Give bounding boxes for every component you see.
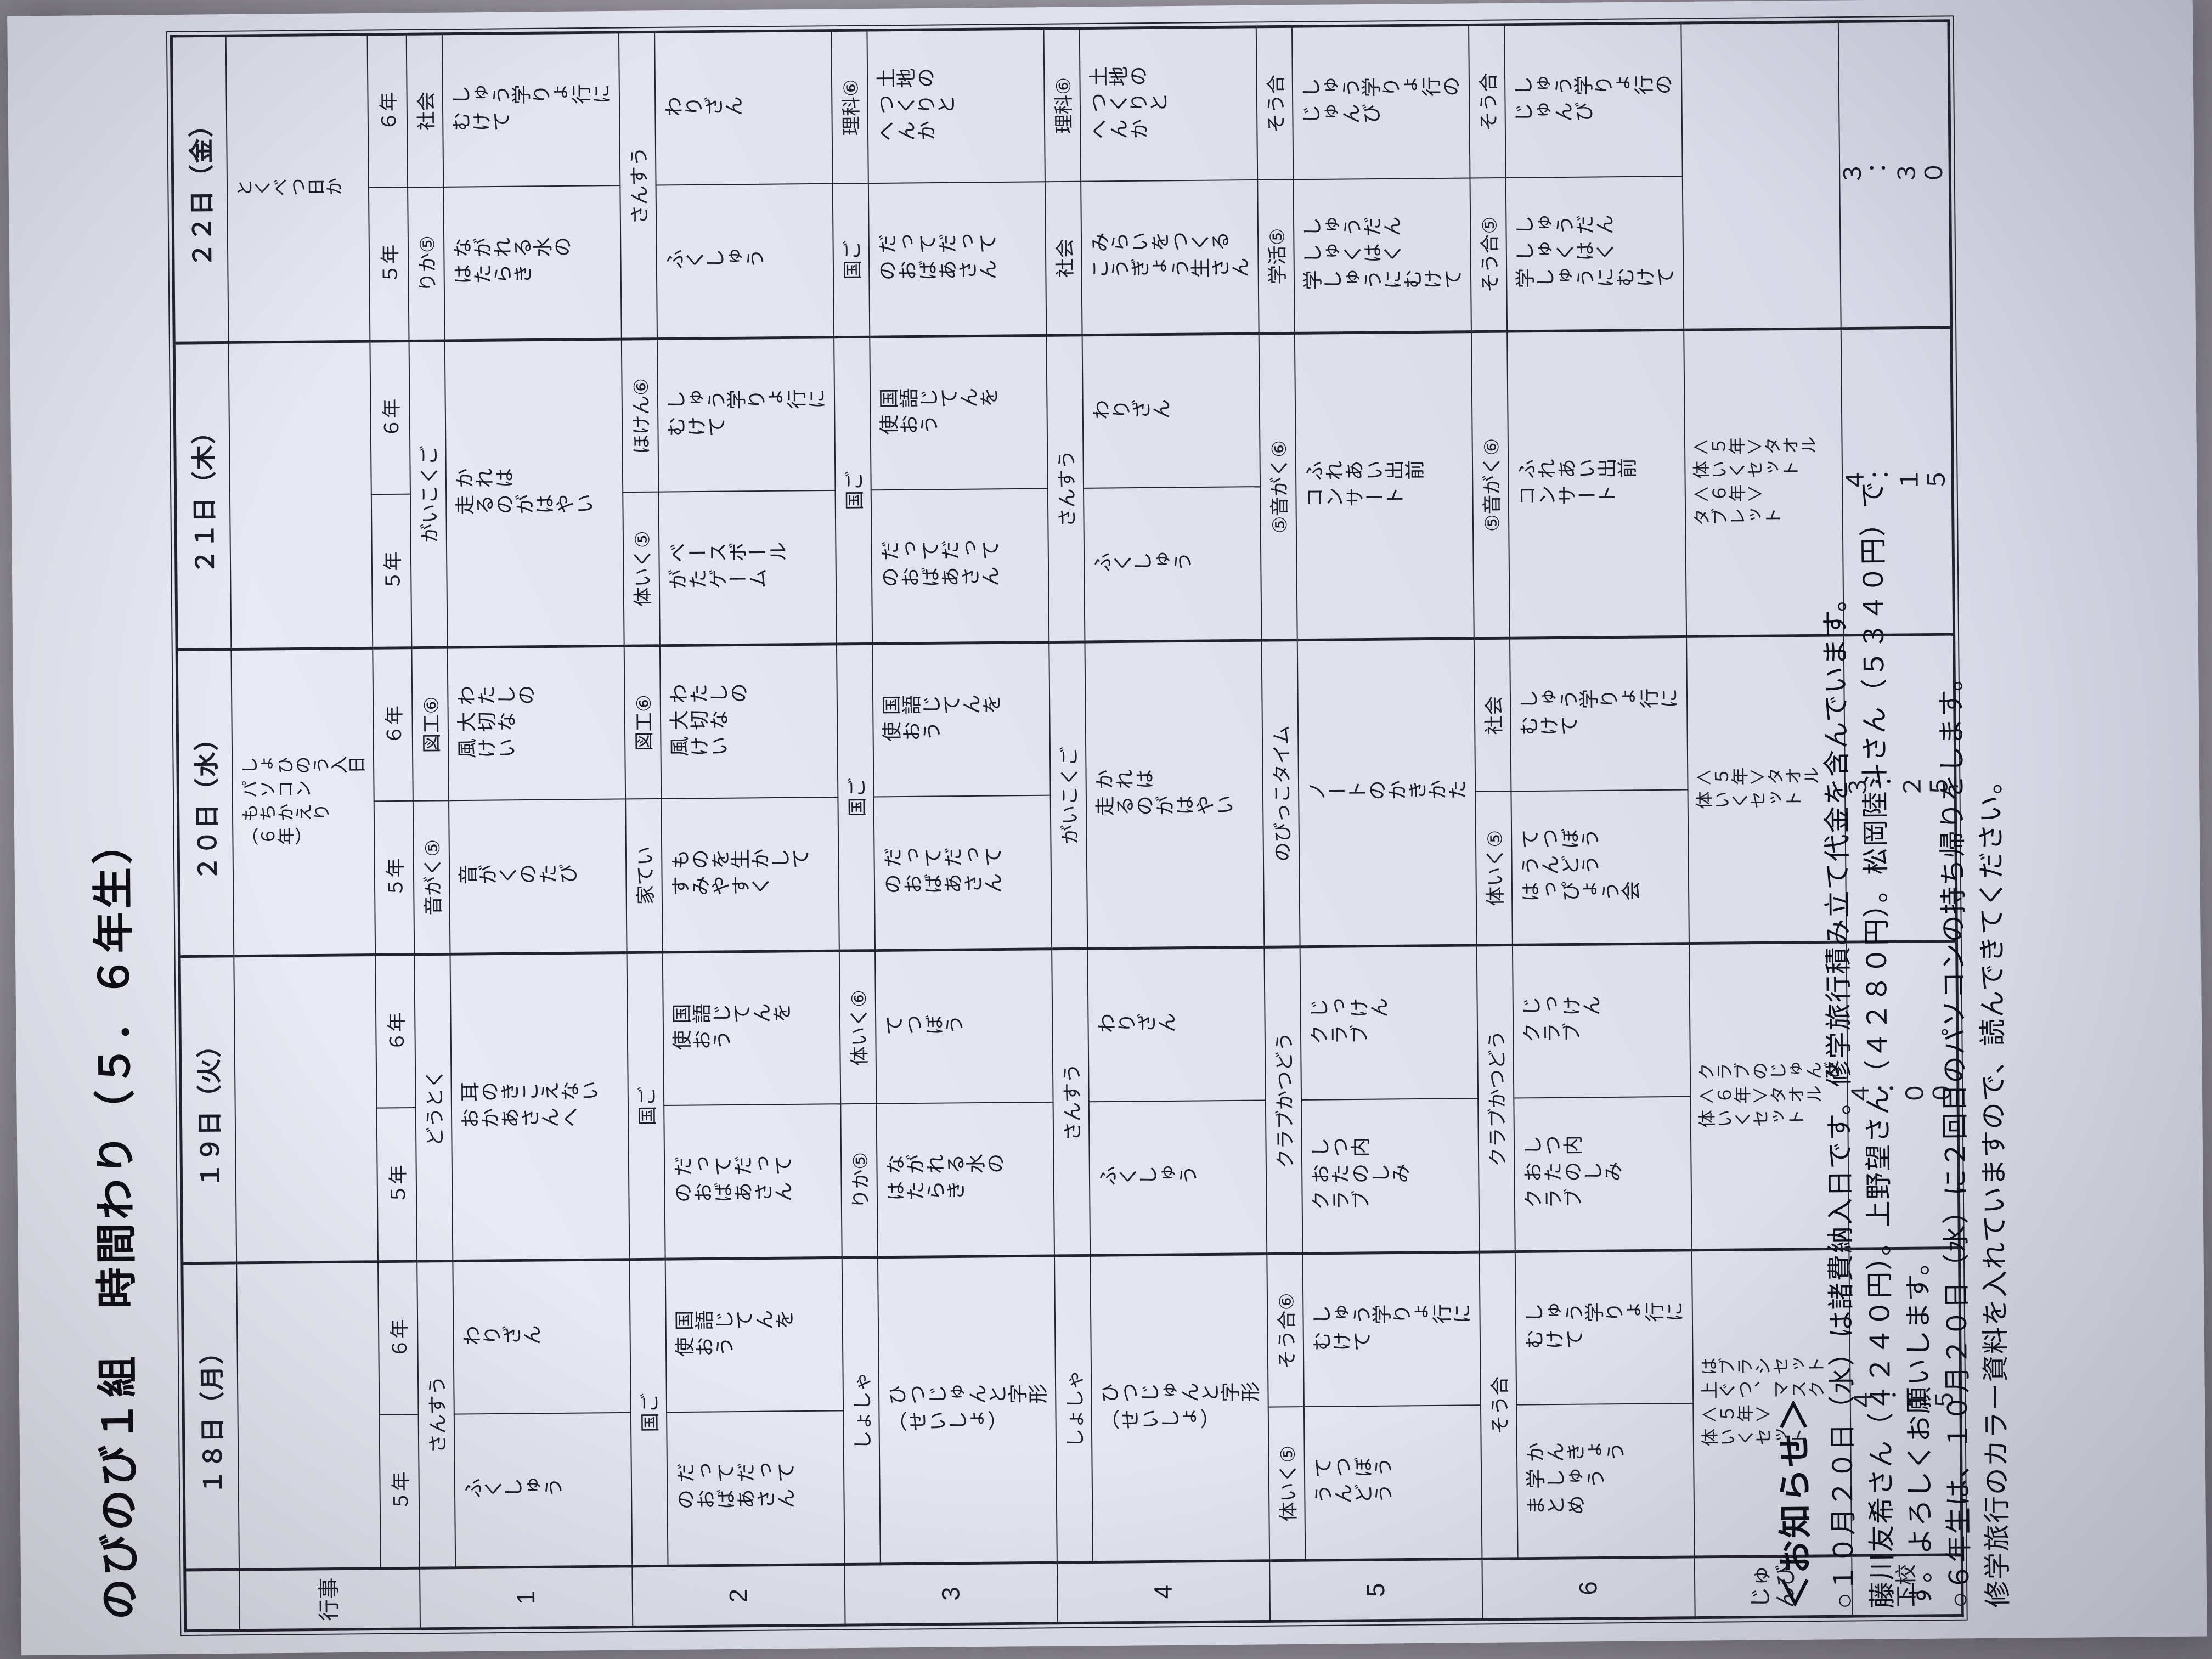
date-header-2: ２０日（水）	[177, 650, 234, 957]
topic-d1-p1: 耳のきこえないおかあさんへ	[450, 953, 629, 1261]
subject-d3-p3: 国ご	[834, 337, 872, 644]
subject-d1-p1: どうとく	[414, 954, 453, 1261]
topic6-d3-p3: 国語じてんを使おう	[870, 335, 1048, 490]
subject6-d4-p4: 理科⑥	[1043, 29, 1081, 182]
topic5-d1-p6: しつ内おたのしみクラブ	[1514, 1097, 1692, 1251]
subject5-d4-p4: 社会	[1045, 182, 1082, 335]
year5-0: ５年	[379, 1415, 420, 1568]
topic5-d3-p3: だってだってのおばあさん	[871, 489, 1049, 644]
subject6-d3-p2: ほけん⑥	[621, 339, 658, 493]
subject-d2-p4: がいこくご	[1049, 642, 1087, 949]
subject-d2-p3: 国ご	[836, 644, 874, 951]
topic5-d4-p2: ふくしゅう	[656, 184, 834, 338]
topic5-d2-p3: だってだってのおばあさん	[873, 795, 1052, 950]
subject6-d2-p1: 図工⑥	[411, 647, 449, 801]
date-header-1: １９日（火）	[179, 956, 236, 1263]
topic6-d1-p6: じっけんクラブ	[1512, 944, 1690, 1098]
topic5-d1-p2: だってだってのおばあさん	[664, 1104, 842, 1259]
document-paper: のびのび１組 時間わり（５．６年生） １８日（月）１９日（火）２０日（水）２１日…	[7, 0, 2207, 1655]
subject-d2-p5: のびっこタイム	[1261, 640, 1300, 947]
year6-3: ６年	[370, 341, 410, 495]
date-header-4: ２２日（金）	[171, 36, 228, 343]
subject6-d4-p5: そう合	[1256, 26, 1293, 180]
topic6-d3-p4: わりざん	[1082, 334, 1260, 488]
topic-d0-p4: ひつじゅんと字形（せいしょ）	[1090, 1254, 1269, 1562]
year6-0: ６年	[378, 1261, 419, 1415]
topic-d2-p4: かれは走るのがはやい	[1085, 640, 1264, 949]
photo-background: のびのび１組 時間わり（５．６年生） １８日（月）１９日（火）２０日（水）２１日…	[0, 0, 2212, 1659]
subject5-d2-p6: 体いく⑤	[1475, 792, 1513, 945]
subject5-d4-p5: 学活⑤	[1257, 180, 1295, 334]
topic5-d0-p6: かんきょう学しゅうまとめ	[1516, 1403, 1695, 1558]
subject6-d2-p6: 社会	[1474, 638, 1511, 792]
row-label-period-1: 1	[420, 1566, 633, 1629]
topic6-d0-p1: わりざん	[453, 1260, 631, 1414]
subject5-d1-p3: りか⑤	[840, 1104, 878, 1257]
subject-d3-p5: ⑤音がく⑥	[1259, 333, 1297, 640]
topic5-d0-p5: てつぼううんどう	[1304, 1406, 1482, 1560]
subject-d0-p4: しょしゃ	[1054, 1255, 1093, 1562]
topic5-d4-p5: しゅうだんしゅくはく学しゅうにむけて	[1293, 178, 1471, 333]
year5-3: ５年	[371, 494, 411, 648]
year5-4: ５年	[368, 188, 409, 341]
subject6-d1-p3: 体いく⑥	[839, 951, 876, 1104]
topic6-d2-p6: しゅう学りょ行にむけて	[1510, 636, 1688, 791]
subject6-d0-p5: そう合⑥	[1267, 1254, 1304, 1407]
topic5-d2-p1: 音がくのたび	[449, 799, 627, 954]
topic5-d1-p4: ふくしゅう	[1088, 1101, 1267, 1255]
year5-2: ５年	[374, 801, 414, 955]
subject5-d4-p1: りか⑤	[408, 187, 445, 341]
event-4: とくべつ日か	[225, 35, 370, 342]
subject-d0-p2: 国ご	[629, 1259, 668, 1566]
row-label-period-2: 2	[632, 1564, 845, 1627]
topic6-d1-p3: てつぼう	[875, 949, 1053, 1104]
topic6-d4-p3: 土地のつくりとへんか	[867, 29, 1045, 183]
timetable-table: １８日（月）１９日（火）２０日（水）２１日（木）２２日（金）行事しょひのう入日パ…	[170, 19, 1963, 1632]
subject6-d4-p6: そう合	[1469, 25, 1506, 178]
topic6-d0-p2: 国語じてんを使おう	[665, 1257, 843, 1412]
row-label-period-3: 3	[844, 1562, 1057, 1625]
row-label-period-4: 4	[1057, 1561, 1269, 1623]
topic5-d2-p6: てつぼううんどうはっぴょう会	[1511, 790, 1689, 945]
topic-d3-p6: ふれあい出前コンサート	[1507, 330, 1686, 638]
subject-d3-p4: さんすう	[1046, 335, 1085, 642]
subject5-d3-p2: 体いく⑤	[623, 492, 660, 646]
subject-d0-p3: しょしゃ	[842, 1257, 880, 1565]
topic5-d2-p2: ものを生かしてすみやすく	[661, 798, 839, 952]
topic5-d0-p2: だってだってのおばあさん	[667, 1411, 845, 1566]
table-corner	[185, 1570, 240, 1631]
page-title: のびのび１組 時間わり（５．６年生）	[80, 820, 146, 1620]
topic-d2-p5: ノートのかきかた	[1297, 639, 1476, 947]
topic6-d4-p5: しゅう学りょ行のじゅんび	[1291, 25, 1470, 179]
subject-d1-p2: 国ご	[627, 952, 665, 1260]
topic6-d2-p3: 国語じてんを使おう	[872, 642, 1051, 797]
topic5-d3-p4: ふくしゅう	[1084, 487, 1262, 642]
notices-block: ＜お知らせ＞ ○１０月２０日（水）は諸費納入日です。修学旅行積み立て代金を含んで…	[1755, 19, 2018, 1610]
topic6-d1-p5: じっけんクラブ	[1300, 945, 1478, 1100]
date-header-3: ２１日（木）	[174, 342, 231, 650]
topic6-d4-p2: わりざん	[654, 31, 833, 185]
event-3	[228, 341, 373, 649]
event-2: しょひのう入日パソコンもちかえり（６年）	[231, 648, 375, 956]
topic-d3-p1: かれは走るのがはやい	[444, 339, 624, 647]
year6-2: ６年	[373, 648, 413, 802]
subject5-d4-p6: そう合⑤	[1470, 178, 1507, 331]
row-label-event: 行事	[239, 1568, 420, 1630]
topic5-d1-p5: しつ内おたのしみクラブ	[1301, 1099, 1480, 1254]
subject5-d0-p5: 体いく⑤	[1268, 1407, 1305, 1561]
topic5-d4-p4: みらいをつくるこうぎょう生さん	[1081, 180, 1259, 335]
topic6-d0-p6: しゅう学りょ行にむけて	[1515, 1250, 1693, 1405]
subject5-d2-p2: 家てい	[625, 799, 663, 952]
event-1	[234, 955, 378, 1263]
row-label-period-5: 5	[1269, 1559, 1482, 1621]
subject6-d2-p2: 図工⑥	[624, 646, 661, 799]
topic6-d2-p2: わたしの大切な風けい	[659, 644, 838, 799]
date-header-0: １８日（月）	[182, 1263, 239, 1570]
topic6-d2-p1: わたしの大切な風けい	[447, 646, 625, 800]
subject-d3-p6: ⑤音がく⑥	[1471, 331, 1509, 639]
subject-d0-p6: そう合	[1479, 1252, 1517, 1559]
year6-1: ６年	[375, 955, 416, 1108]
topic6-d3-p2: しゅう学りょ行にむけて	[657, 337, 836, 492]
topic-d0-p3: ひつじゅんと字形（せいしょ）	[877, 1256, 1057, 1564]
topic6-d4-p4: 土地のつくりとへんか	[1079, 27, 1257, 182]
topic6-d4-p6: しゅう学りょ行のじゅんび	[1504, 23, 1683, 178]
topic6-d1-p4: わりざん	[1087, 947, 1266, 1102]
topic5-d4-p1: ながれる水のはたらき	[443, 186, 622, 341]
subject5-d2-p1: 音がく⑤	[413, 801, 450, 955]
subject-d3-p1: がいこくご	[409, 341, 447, 648]
topic-d3-p5: ふれあい出前コンサート	[1294, 332, 1474, 640]
subject-d4-p2: さんすう	[618, 32, 657, 339]
topic5-d0-p1: ふくしゅう	[454, 1413, 632, 1567]
topic6-d0-p5: しゅう学りょ行にむけて	[1302, 1252, 1481, 1407]
row-label-period-6: 6	[1482, 1557, 1695, 1620]
event-0	[236, 1262, 381, 1570]
subject-d0-p1: さんすう	[417, 1261, 455, 1568]
subject6-d4-p3: 理科⑥	[831, 30, 868, 184]
subject5-d4-p3: 国ご	[832, 184, 870, 337]
subject-d1-p6: クラブかつどう	[1476, 945, 1515, 1252]
topic5-d3-p2: ベースボールがたゲーム	[658, 490, 837, 645]
topic5-d1-p3: ながれる水のはたらき	[876, 1102, 1054, 1257]
subject6-d4-p1: 社会	[406, 34, 443, 188]
subject-d1-p5: クラブかつどう	[1264, 947, 1302, 1254]
topic5-d4-p6: しゅうだんしゅくはく学しゅうにむけて	[1505, 177, 1684, 331]
year6-4: ６年	[367, 34, 408, 188]
topic6-d1-p2: 国語じてんを使おう	[662, 951, 840, 1105]
year5-1: ５年	[376, 1108, 417, 1261]
topic5-d4-p3: だってだってのおばあさん	[868, 182, 1046, 337]
subject-d1-p4: さんすう	[1052, 949, 1090, 1256]
topic6-d4-p1: しゅう学りょ行にむけて	[442, 32, 620, 187]
